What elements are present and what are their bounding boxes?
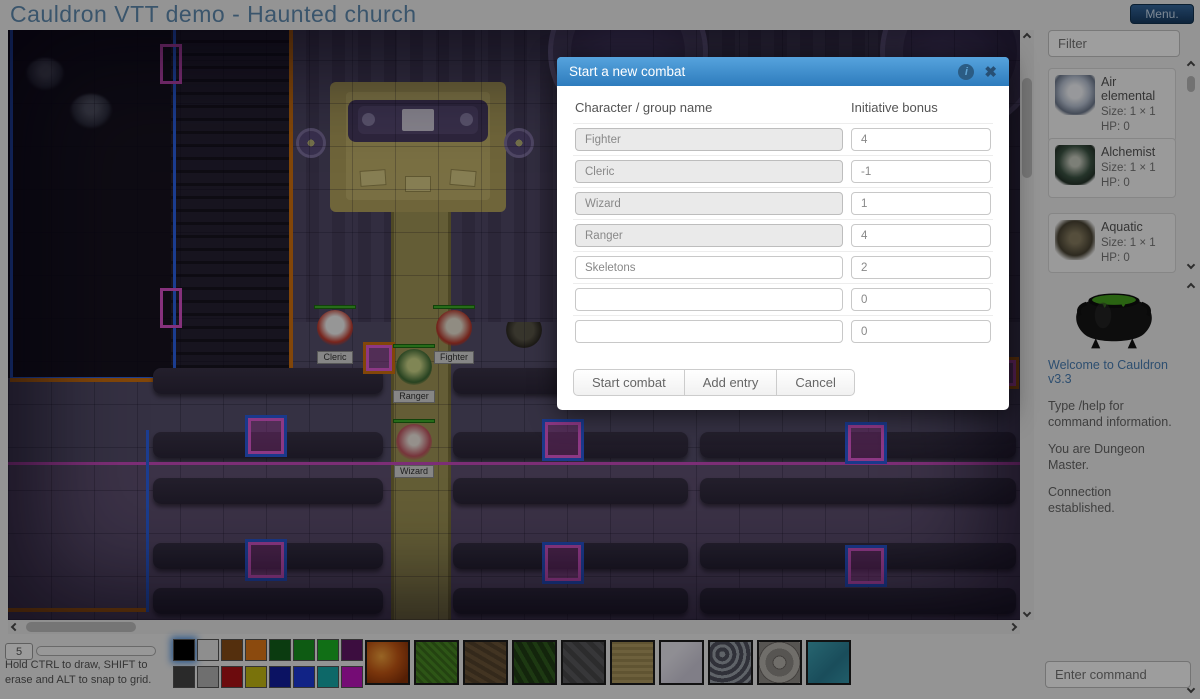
combat-entry-row	[573, 252, 993, 284]
combat-entry-row	[573, 156, 993, 188]
start-combat-button[interactable]: Start combat	[573, 369, 685, 396]
initiative-bonus-input[interactable]	[851, 288, 991, 311]
character-name-input[interactable]	[575, 160, 843, 183]
initiative-bonus-input[interactable]	[851, 256, 991, 279]
bonus-column-header: Initiative bonus	[851, 100, 991, 115]
character-name-input[interactable]	[575, 192, 843, 215]
combat-entry-row	[573, 188, 993, 220]
dialog-header[interactable]: Start a new combat i ✖	[557, 57, 1009, 86]
character-name-input[interactable]	[575, 224, 843, 247]
start-combat-dialog: Start a new combat i ✖ Character / group…	[557, 57, 1009, 410]
dialog-title: Start a new combat	[569, 64, 958, 79]
initiative-bonus-input[interactable]	[851, 224, 991, 247]
initiative-bonus-input[interactable]	[851, 320, 991, 343]
info-icon[interactable]: i	[958, 64, 974, 80]
name-column-header: Character / group name	[575, 100, 843, 115]
combat-entry-row	[573, 220, 993, 252]
combat-entry-row	[573, 316, 993, 347]
character-name-input[interactable]	[575, 128, 843, 151]
character-name-input[interactable]	[575, 256, 843, 279]
initiative-bonus-input[interactable]	[851, 192, 991, 215]
initiative-bonus-input[interactable]	[851, 160, 991, 183]
close-icon[interactable]: ✖	[984, 63, 997, 81]
cancel-button[interactable]: Cancel	[776, 369, 854, 396]
character-name-input[interactable]	[575, 320, 843, 343]
add-entry-button[interactable]: Add entry	[684, 369, 778, 396]
combat-entry-row	[573, 284, 993, 316]
initiative-bonus-input[interactable]	[851, 128, 991, 151]
character-name-input[interactable]	[575, 288, 843, 311]
dialog-body: Character / group name Initiative bonus	[557, 86, 1009, 410]
combat-entry-row	[573, 124, 993, 156]
